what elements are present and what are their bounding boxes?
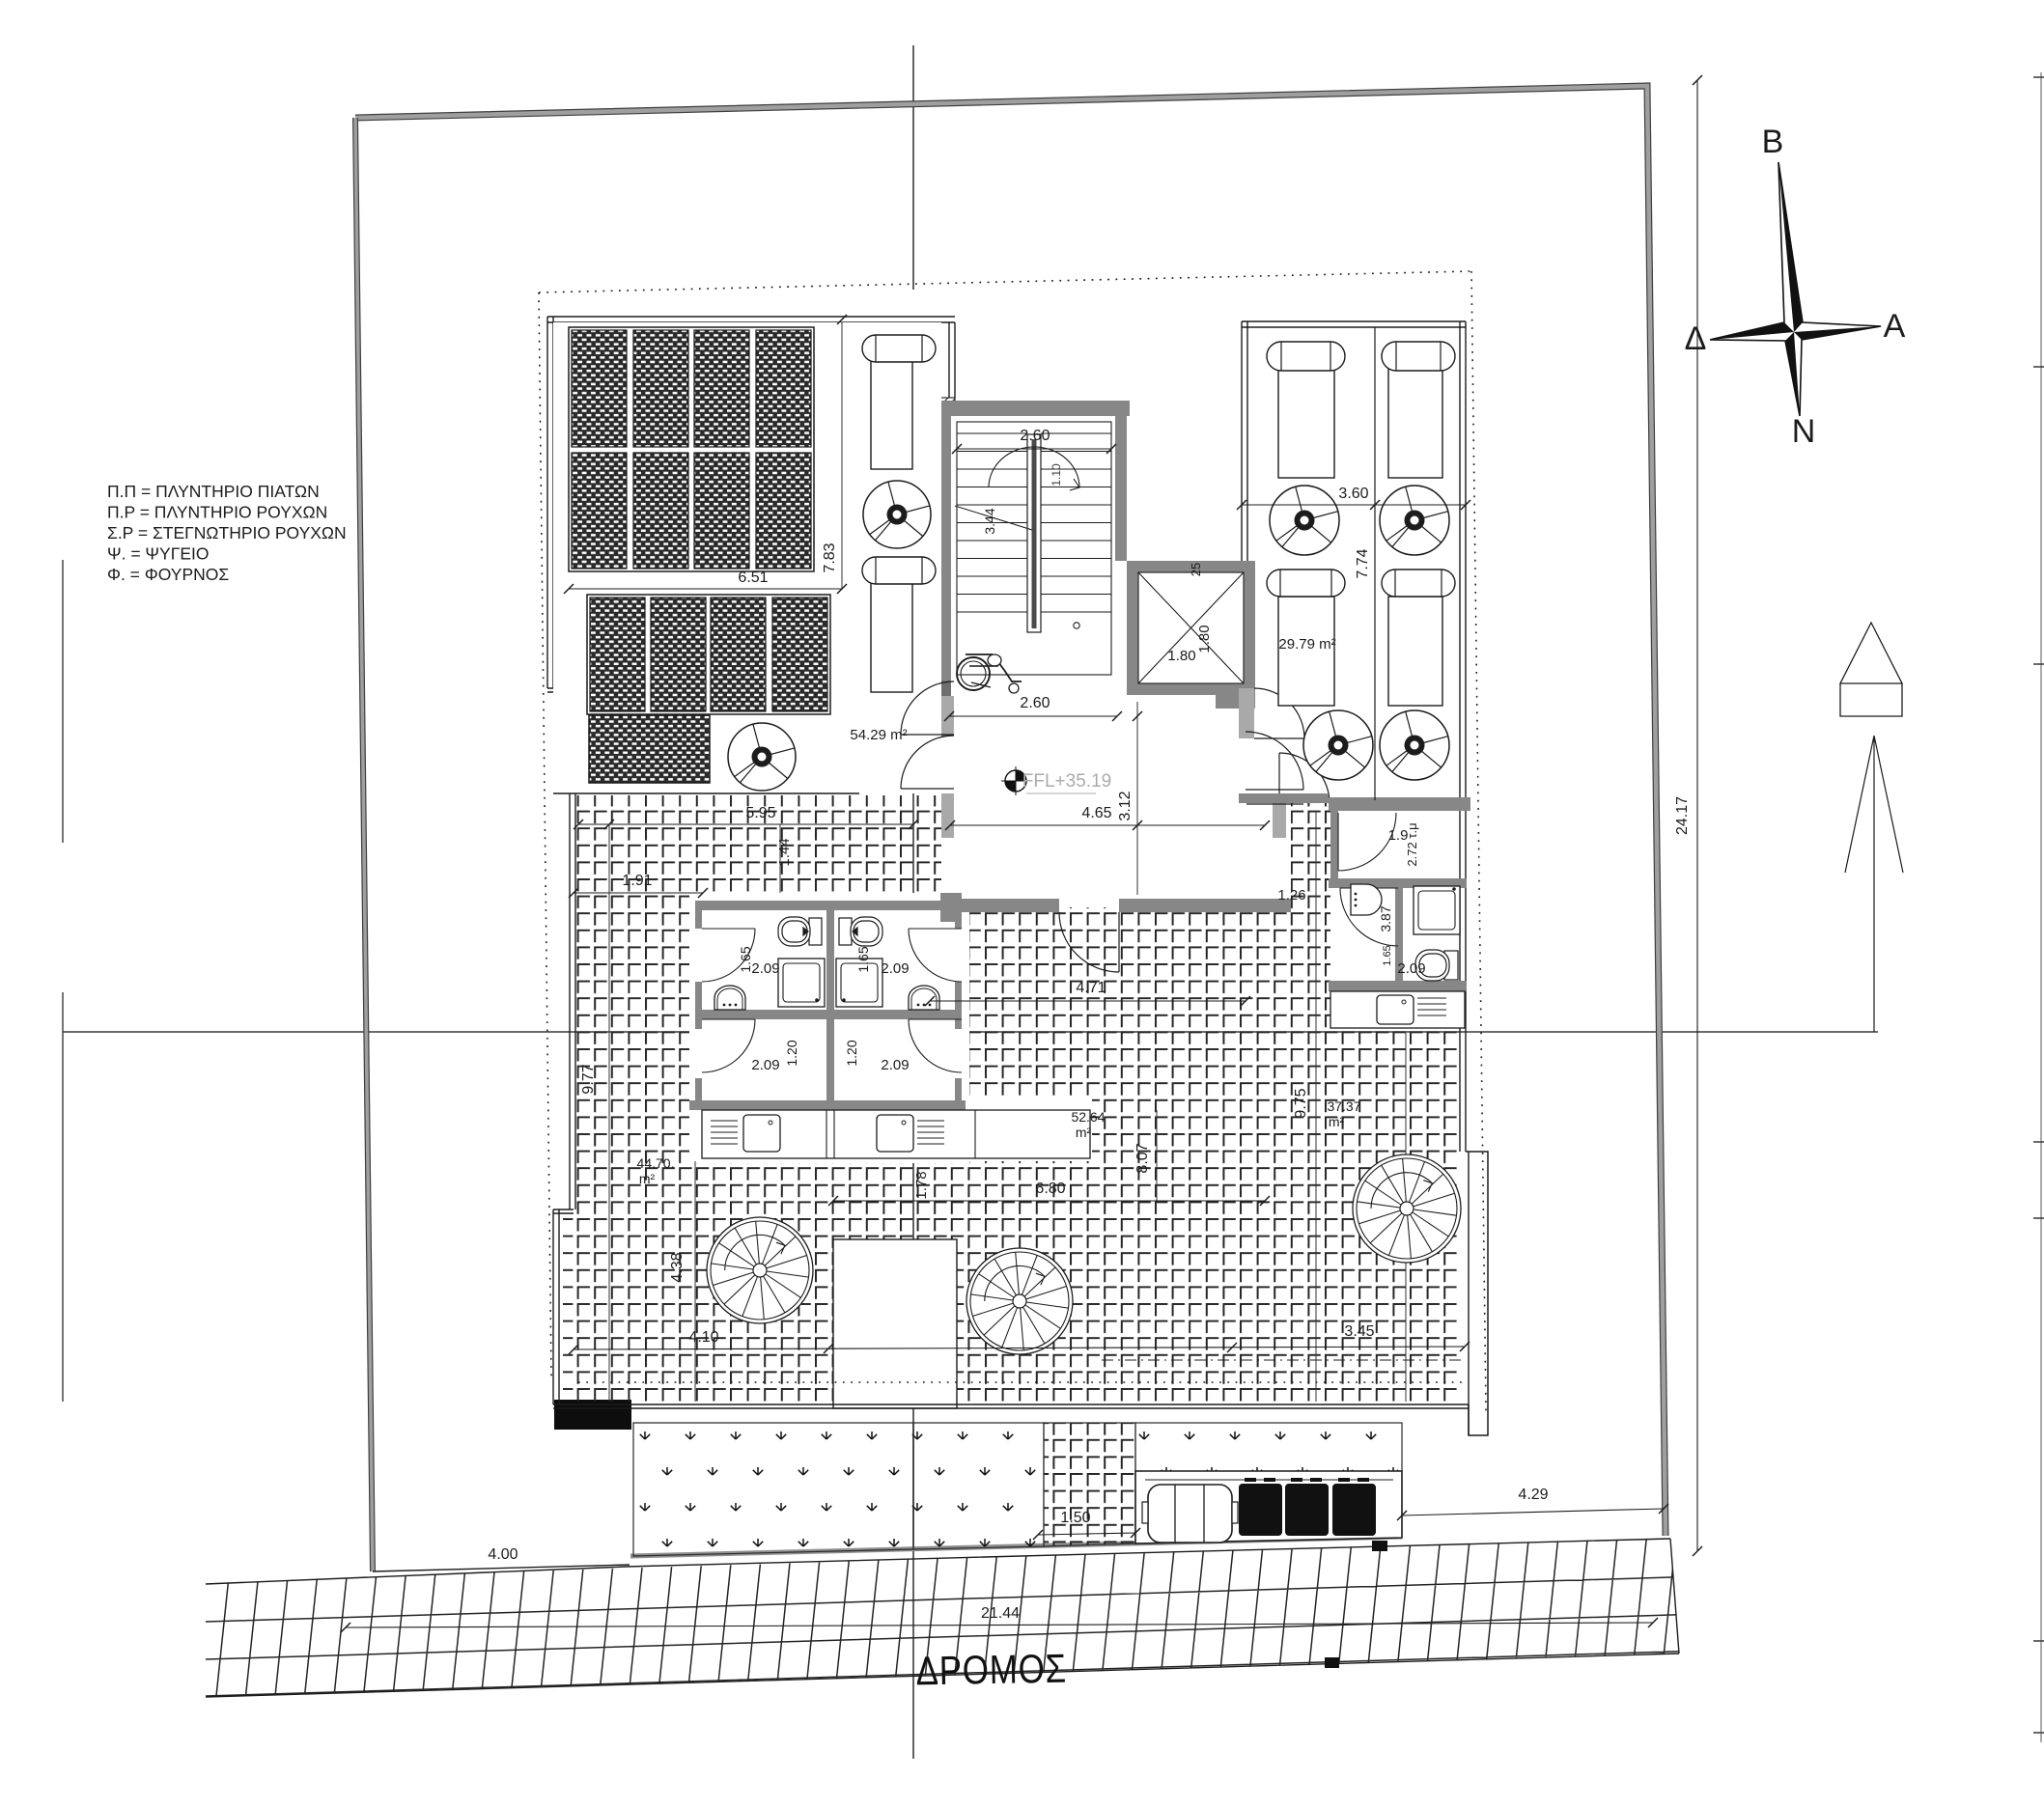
- svg-text:Β: Β: [1762, 124, 1784, 160]
- svg-text:3.45: 3.45: [1344, 1323, 1374, 1340]
- svg-text:9.75: 9.75: [1293, 1088, 1309, 1118]
- svg-text:2.09: 2.09: [751, 1057, 779, 1073]
- svg-text:37.37: 37.37: [1327, 1098, 1360, 1114]
- svg-text:44.70.: 44.70.: [637, 1155, 675, 1171]
- svg-text:1.78: 1.78: [913, 1171, 930, 1199]
- svg-text:1.65: 1.65: [855, 946, 871, 972]
- svg-text:24.17: 24.17: [1674, 796, 1691, 835]
- svg-text:3.12: 3.12: [1117, 791, 1134, 820]
- svg-text:4.29: 4.29: [1518, 1487, 1548, 1503]
- svg-text:2.09: 2.09: [881, 1057, 909, 1073]
- svg-text:2.72 τ.μ: 2.72 τ.μ: [1405, 822, 1419, 866]
- svg-text:9.77: 9.77: [580, 1064, 597, 1094]
- svg-text:Ν: Ν: [1792, 413, 1816, 450]
- svg-text:1.26: 1.26: [1277, 887, 1305, 903]
- svg-text:4.65: 4.65: [1081, 805, 1111, 821]
- svg-text:Π.Π = ΠΛΥΝΤΗΡΙΟ ΠΙΑΤΩΝ: Π.Π = ΠΛΥΝΤΗΡΙΟ ΠΙΑΤΩΝ: [107, 482, 320, 501]
- svg-text:3.44: 3.44: [982, 508, 997, 534]
- svg-text:m²: m²: [1076, 1125, 1092, 1140]
- svg-text:Π.Ρ = ΠΛΥΝΤΗΡΙΟ ΡΟΥΧΩΝ: Π.Ρ = ΠΛΥΝΤΗΡΙΟ ΡΟΥΧΩΝ: [107, 503, 327, 522]
- svg-text:1.65: 1.65: [1382, 945, 1393, 965]
- svg-text:1.44: 1.44: [776, 838, 793, 866]
- svg-text:FFL+35.19: FFL+35.19: [1022, 771, 1111, 792]
- svg-text:29.79 m²: 29.79 m²: [1278, 636, 1335, 653]
- svg-text:Σ.Ρ = ΣΤΕΓΝΩΤΗΡΙΟ ΡΟΥΧΩΝ: Σ.Ρ = ΣΤΕΓΝΩΤΗΡΙΟ ΡΟΥΧΩΝ: [107, 523, 347, 542]
- svg-text:m²: m²: [639, 1171, 656, 1186]
- svg-text:8.07: 8.07: [1134, 1143, 1151, 1173]
- svg-text:5.95: 5.95: [745, 805, 775, 821]
- svg-text:3.60: 3.60: [1338, 486, 1368, 502]
- svg-text:4.38: 4.38: [669, 1252, 686, 1282]
- svg-text:7.74: 7.74: [1355, 548, 1371, 578]
- svg-text:3.87: 3.87: [1378, 905, 1393, 931]
- svg-text:7.83: 7.83: [822, 542, 838, 572]
- svg-text:6.51: 6.51: [738, 570, 768, 586]
- svg-text:4.00: 4.00: [488, 1546, 518, 1563]
- svg-text:Ψ. = ΨΥΓΕΙΟ: Ψ. = ΨΥΓΕΙΟ: [107, 544, 210, 564]
- svg-text:Α: Α: [1884, 308, 1906, 345]
- svg-text:m²: m²: [1329, 1114, 1345, 1129]
- svg-text:1.10: 1.10: [1050, 463, 1063, 486]
- svg-text:1.20: 1.20: [844, 1040, 859, 1066]
- svg-text:1.65: 1.65: [738, 946, 753, 972]
- svg-text:2.60: 2.60: [1020, 428, 1050, 444]
- svg-text:Δ: Δ: [1685, 320, 1707, 357]
- svg-text:52.64: 52.64: [1071, 1109, 1105, 1125]
- svg-text:4.10: 4.10: [688, 1329, 718, 1346]
- svg-text:1.80: 1.80: [1196, 625, 1213, 653]
- svg-text:2.09: 2.09: [881, 960, 909, 977]
- svg-text:21.44: 21.44: [981, 1605, 1020, 1622]
- svg-text:Φ. = ΦΟΥΡΝΟΣ: Φ. = ΦΟΥΡΝΟΣ: [107, 565, 229, 584]
- svg-text:2.09: 2.09: [751, 960, 779, 977]
- svg-text:25: 25: [1189, 563, 1203, 576]
- svg-text:54.29 m²: 54.29 m²: [850, 727, 907, 743]
- svg-text:6.80: 6.80: [1035, 1181, 1065, 1197]
- svg-text:1.50: 1.50: [1060, 1510, 1090, 1526]
- svg-text:1.80: 1.80: [1167, 648, 1195, 664]
- svg-text:ΔΡΟΜΟΣ: ΔΡΟΜΟΣ: [915, 1647, 1067, 1695]
- svg-text:2.60: 2.60: [1020, 695, 1050, 711]
- svg-text:1.20: 1.20: [784, 1040, 799, 1066]
- svg-text:2.09: 2.09: [1397, 960, 1425, 977]
- svg-text:4.71: 4.71: [1076, 980, 1106, 996]
- svg-text:1.91: 1.91: [622, 873, 652, 889]
